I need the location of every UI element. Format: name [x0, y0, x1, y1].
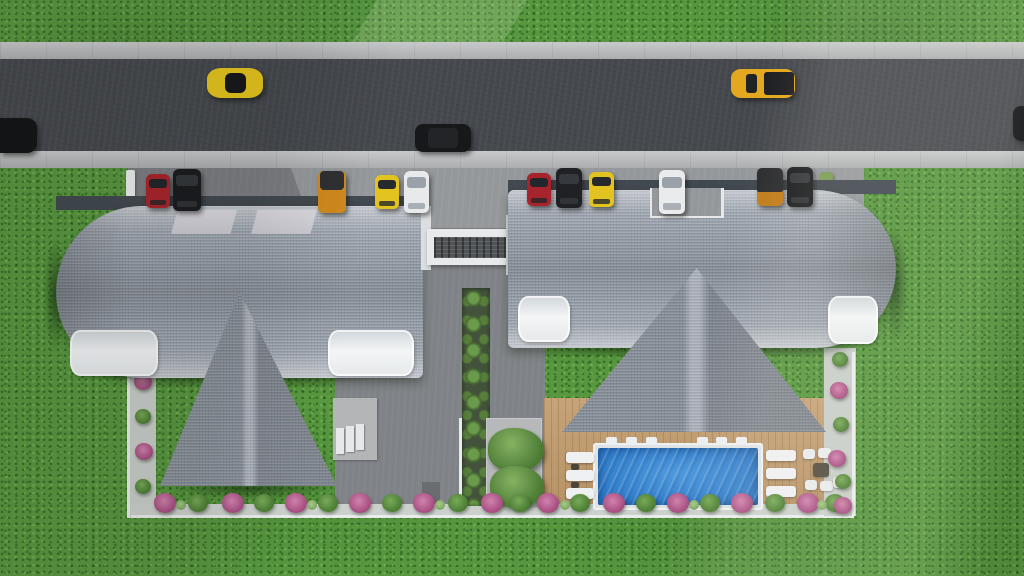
bottom-bush-pink-2	[222, 493, 244, 513]
bottom-bush-green-7	[570, 494, 590, 512]
road-car-yellow-cabin	[225, 73, 246, 93]
left-dormer-east	[328, 330, 414, 376]
bottom-bush-pink-1	[154, 493, 176, 513]
sun-mat-2	[626, 437, 637, 445]
bottom-bush-pink-6	[481, 493, 503, 513]
sun-mat-4	[697, 437, 708, 445]
right-bed-green-3	[835, 474, 851, 489]
parked-car-red-2	[527, 173, 551, 206]
left-bed-whiteline	[127, 368, 130, 518]
lounger-left-2	[566, 470, 594, 481]
side-table-left-1	[571, 464, 579, 470]
hedge-whiteline-west	[459, 418, 462, 506]
south-step-2	[346, 426, 354, 452]
lounger-right-2	[766, 468, 796, 479]
bottom-bush-green-9	[700, 494, 720, 512]
south-step-3	[356, 424, 364, 450]
road-pickup-glass	[746, 74, 757, 93]
left-bed-green-1	[135, 409, 151, 424]
right-bed-pink-2	[828, 450, 846, 467]
parked-suv-black-3	[787, 167, 813, 207]
bottom-bush-green-10	[765, 494, 785, 512]
parked-car-white-2	[659, 170, 685, 214]
bottom-sprig-6	[817, 500, 827, 510]
bottom-bush-green-2	[254, 494, 274, 512]
patio-seat-5	[820, 481, 833, 491]
left-roof-skylight-1	[171, 210, 237, 234]
bottom-sprig-2	[307, 500, 317, 510]
bottom-bush-green-1	[188, 494, 208, 512]
road-asphalt	[0, 59, 1024, 151]
side-table-left-2	[571, 482, 579, 488]
right-bed-pink-3	[834, 497, 852, 514]
sun-mat-3	[646, 437, 657, 445]
south-step-1	[336, 428, 344, 454]
left-bed-pink-2	[135, 443, 153, 460]
patio-seat-4	[805, 480, 817, 490]
road-car-edge-east	[1013, 106, 1024, 141]
entry-gate-cobbles	[434, 237, 508, 258]
bottom-bush-green-3	[318, 494, 338, 512]
parked-car-yellow-1	[375, 175, 399, 209]
parked-truck-dark-top	[757, 168, 783, 192]
patio-seat-1	[803, 449, 815, 459]
left-roof-skylight-2	[251, 210, 317, 234]
bottom-sprig-3	[435, 500, 445, 510]
bottom-bush-pink-5	[413, 493, 435, 513]
parked-suv-black-1	[173, 169, 201, 211]
sun-mat-5	[716, 437, 727, 445]
road-suv-black-west	[0, 118, 37, 153]
entry-driveway	[423, 168, 510, 232]
right-dormer-west	[518, 296, 570, 342]
road-pickup-bed	[764, 72, 794, 95]
bottom-bush-pink-4	[349, 493, 371, 513]
left-bed-green-2	[135, 479, 151, 494]
left-dormer-west	[70, 330, 158, 376]
sun-mat-6	[736, 437, 747, 445]
parked-suv-black-2	[556, 168, 582, 208]
right-bed-pink-1	[830, 382, 848, 399]
right-dormer-east	[828, 296, 878, 344]
right-bed-green-1	[832, 352, 848, 367]
right-bed-green-2	[833, 417, 849, 432]
bottom-sprig-4	[560, 500, 570, 510]
sidewalk-top	[0, 42, 1024, 59]
aerial-site-render	[0, 0, 1024, 576]
parked-car-red-1	[146, 174, 170, 208]
bottom-sprig-1	[176, 500, 186, 510]
bottom-bush-pink-11	[797, 493, 819, 513]
parked-car-white-1	[404, 171, 429, 213]
bottom-bush-pink-3	[285, 493, 307, 513]
right-bed-whiteline	[852, 352, 855, 516]
patio-table	[813, 463, 829, 477]
bottom-bush-green-5	[448, 494, 468, 512]
bottom-bush-pink-10	[731, 493, 753, 513]
sun-mat-1	[606, 437, 617, 445]
bottom-bush-pink-8	[603, 493, 625, 513]
bottom-bush-green-4	[382, 494, 402, 512]
bottom-bush-pink-7	[537, 493, 559, 513]
lounger-left-1	[566, 452, 594, 463]
parked-car-yellow-2	[589, 172, 614, 207]
parked-truck-orange-cab	[320, 171, 344, 190]
bottom-whiteline	[131, 515, 854, 518]
lounger-right-1	[766, 450, 796, 461]
sidewalk-bottom	[0, 151, 1024, 168]
sunlit-grass-patch	[352, 0, 528, 42]
road-jeep-roof	[428, 128, 458, 148]
bottom-bush-green-6	[510, 494, 530, 512]
bottom-bush-green-8	[636, 494, 656, 512]
bottom-bush-pink-9	[667, 493, 689, 513]
bottom-sprig-5	[689, 500, 699, 510]
